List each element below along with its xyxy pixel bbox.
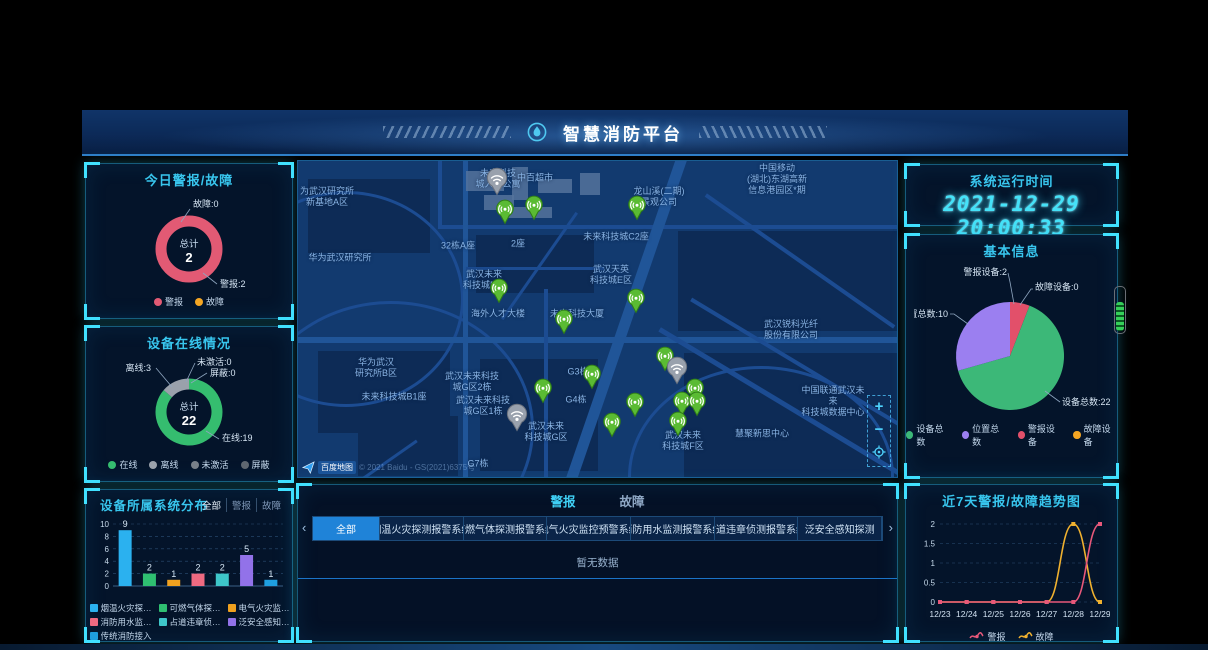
svg-text:12/25: 12/25: [982, 609, 1004, 619]
map-label: 海外人才大楼: [471, 309, 525, 320]
svg-text:12/26: 12/26: [1009, 609, 1031, 619]
alarm-filter-button[interactable]: 占道违章侦测报警系统: [715, 517, 799, 540]
device-marker-online[interactable]: [495, 199, 515, 229]
svg-text:2: 2: [147, 563, 152, 573]
svg-text:12/23: 12/23: [929, 609, 951, 619]
header-hatch-left: [383, 126, 511, 138]
svg-text:8: 8: [105, 532, 110, 541]
legend-item[interactable]: 占道违章侦测报警系统: [159, 616, 222, 628]
svg-text:12/24: 12/24: [956, 609, 978, 619]
tab-alarm[interactable]: 警报: [550, 491, 575, 510]
svg-text:9: 9: [123, 519, 128, 529]
legend-item[interactable]: 故障: [1018, 630, 1054, 643]
device-marker-online[interactable]: [626, 288, 646, 318]
svg-text:故障设备:0: 故障设备:0: [1035, 281, 1079, 292]
fire-shield-icon: [527, 122, 547, 142]
legend-item[interactable]: 可燃气体探测报警系统: [159, 602, 222, 614]
panel-title: 近7天警报/故障趋势图: [906, 491, 1117, 510]
panel-today-alarms: 今日警报/故障 总计2故障:0警报:2 警报故障: [85, 163, 293, 319]
device-marker-online[interactable]: [625, 392, 645, 422]
legend-item[interactable]: 烟温火灾探测报警系统: [90, 602, 153, 614]
legend-item[interactable]: 泛安全感知探测: [228, 616, 291, 628]
locate-button[interactable]: [872, 445, 886, 462]
footer-strip: [0, 644, 1208, 650]
legend-item[interactable]: 警报: [969, 630, 1005, 643]
svg-text:12/27: 12/27: [1036, 609, 1058, 619]
map-block: [678, 231, 898, 331]
legend-item[interactable]: 离线: [149, 458, 178, 471]
svg-text:离线:3: 离线:3: [125, 362, 151, 373]
svg-text:警报:2: 警报:2: [220, 278, 246, 289]
svg-text:6: 6: [105, 545, 110, 554]
alarm-fault-tabs: 警报 故障: [298, 485, 897, 510]
map-controls: + −: [867, 395, 891, 467]
header-hatch-right: [699, 126, 827, 138]
map-road: [438, 161, 442, 227]
device-marker-online[interactable]: [554, 309, 574, 339]
panel-header: 设备所属系统分布 全部警报故障: [86, 490, 292, 512]
system-distribution-bar-chart: 02468109212251: [91, 512, 287, 600]
legend-item[interactable]: 传统消防接入: [90, 630, 152, 642]
app-header: 智慧消防平台: [82, 110, 1128, 156]
svg-text:10: 10: [100, 520, 109, 529]
zoom-in-button[interactable]: +: [875, 400, 884, 414]
chart-legend: 警报故障: [906, 630, 1117, 643]
filter-scroll-right-icon[interactable]: ›: [889, 520, 893, 536]
today-alarm-donut-chart: 总计2故障:0警报:2: [91, 191, 287, 295]
chart-legend: 在线离线未激活屏蔽: [86, 458, 292, 471]
divider: [298, 578, 897, 579]
device-marker-online[interactable]: [627, 195, 647, 225]
panel-device-online: 设备在线情况 总计22离线:3未激活:0屏蔽:0在线:19 在线离线未激活屏蔽: [85, 326, 293, 482]
map-road: [463, 161, 468, 478]
device-marker-online[interactable]: [524, 195, 544, 225]
chart-legend: 烟温火灾探测报警系统可燃气体探测报警系统电气火灾监控预警系统消防用水监测报警系统…: [86, 600, 292, 642]
svg-text:在线:19: 在线:19: [222, 432, 253, 443]
panel-title: 今日警报/故障: [86, 170, 292, 189]
svg-text:5: 5: [244, 544, 249, 554]
svg-text:1: 1: [171, 569, 176, 579]
svg-text:0.5: 0.5: [923, 579, 935, 588]
svg-text:12/29: 12/29: [1089, 609, 1110, 619]
svg-text:0: 0: [930, 598, 935, 607]
svg-text:4: 4: [105, 557, 110, 566]
svg-text:故障:0: 故障:0: [193, 198, 219, 209]
zoom-out-button[interactable]: −: [875, 423, 884, 437]
device-marker-offline[interactable]: [505, 404, 529, 437]
legend-item[interactable]: 警报: [154, 295, 183, 308]
panel-title: 设备所属系统分布: [100, 495, 208, 514]
dashboard: 智慧消防平台 今日警报/故障 总计2故障:0警报:2 警报故障 设备在线情况 总…: [0, 0, 1208, 650]
legend-item[interactable]: 消防用水监测报警系统: [90, 616, 153, 628]
svg-text:2: 2: [195, 563, 200, 573]
svg-text:总计: 总计: [179, 238, 199, 250]
device-marker-offline[interactable]: [665, 357, 689, 390]
panel-alarm-list: 警报 故障 ‹ 全部烟温火灾探测报警系统可燃气体探测报警系统电气火灾监控预警系统…: [297, 484, 898, 642]
alarm-filter-button[interactable]: 烟温火灾探测报警系统: [380, 517, 464, 540]
svg-text:1: 1: [268, 569, 273, 579]
device-marker-offline[interactable]: [485, 168, 509, 201]
legend-item[interactable]: 位置总数: [962, 422, 1006, 448]
legend-item[interactable]: 故障: [195, 295, 224, 308]
svg-text:2: 2: [930, 520, 935, 529]
svg-text:2: 2: [105, 570, 110, 579]
map-copyright: © 2021 Baidu - GS(2021)6375号: [359, 462, 475, 473]
chart-legend: 设备总数位置总数警报设备故障设备: [906, 422, 1117, 448]
baidu-map-label[interactable]: 百度地图: [318, 461, 356, 474]
device-marker-online[interactable]: [602, 412, 622, 442]
legend-item[interactable]: 警报设备: [1018, 422, 1062, 448]
map-road: [297, 301, 534, 478]
alarm-filter-button[interactable]: 泛安全感知探测: [798, 517, 882, 540]
panel-system-distribution: 设备所属系统分布 全部警报故障 02468109212251 烟温火灾探测报警系…: [85, 489, 293, 642]
legend-item[interactable]: 设备总数: [906, 422, 950, 448]
scroll-indicator-fill: [1116, 302, 1124, 331]
svg-text:0: 0: [105, 582, 110, 591]
alarm-filter-button[interactable]: 可燃气体探测报警系统: [464, 517, 548, 540]
alarm-filter-button[interactable]: 全部: [313, 517, 380, 540]
empty-state-text: 暂无数据: [298, 555, 897, 570]
legend-item[interactable]: 电气火灾监控预警系统: [228, 602, 291, 614]
device-marker-online[interactable]: [489, 278, 509, 308]
alarm-filter-button[interactable]: 消防用水监测报警系统: [631, 517, 715, 540]
legend-item[interactable]: 故障设备: [1073, 422, 1117, 448]
chart-legend: 警报故障: [86, 295, 292, 308]
device-marker-online[interactable]: [582, 364, 602, 394]
svg-text:2: 2: [220, 563, 225, 573]
svg-text:总计: 总计: [179, 401, 199, 413]
page-title: 智慧消防平台: [563, 120, 683, 145]
page-scroll-indicator[interactable]: [1114, 286, 1126, 334]
svg-text:位置总数:10: 位置总数:10: [914, 308, 948, 319]
device-marker-online[interactable]: [533, 378, 553, 408]
map-label: 中国移动 (湖北)东湖高新 信息港园区*期: [747, 163, 807, 195]
distribution-filter-警报[interactable]: 警报: [226, 498, 256, 512]
panel-title: 基本信息: [906, 241, 1117, 260]
panel-title: 系统运行时间: [906, 171, 1117, 190]
panel-basic-info: 基本信息 警报设备:2故障设备:0位置总数:10设备总数:22 设备总数位置总数…: [905, 234, 1118, 478]
device-marker-online[interactable]: [687, 391, 707, 421]
svg-text:1: 1: [930, 559, 935, 568]
tab-fault[interactable]: 故障: [620, 491, 645, 510]
legend-item[interactable]: 屏蔽: [241, 458, 270, 471]
alarm-filter-bar: ‹ 全部烟温火灾探测报警系统可燃气体探测报警系统电气火灾监控预警系统消防用水监测…: [312, 516, 883, 541]
alarm-filter-button[interactable]: 电气火灾监控预警系统: [547, 517, 631, 540]
map-road: [298, 337, 898, 343]
basic-info-pie-chart: 警报设备:2故障设备:0位置总数:10设备总数:22: [914, 262, 1110, 422]
filter-scroll-left-icon[interactable]: ‹: [302, 520, 306, 536]
panel-title: 设备在线情况: [86, 333, 292, 352]
map-building: [538, 179, 572, 193]
svg-text:12/28: 12/28: [1062, 609, 1084, 619]
svg-text:2: 2: [185, 250, 192, 265]
svg-text:设备总数:22: 设备总数:22: [1062, 396, 1110, 407]
legend-item[interactable]: 未激活: [191, 458, 229, 471]
device-online-donut-chart: 总计22离线:3未激活:0屏蔽:0在线:19: [91, 354, 287, 458]
distribution-filter-tabs: 全部警报故障: [197, 498, 286, 512]
svg-text:屏蔽:0: 屏蔽:0: [210, 367, 236, 378]
map-canvas[interactable]: 未来科技 城人才公寓中百超市为武汉研究所 新基地A区龙山溪(二期) 景观公司中国…: [297, 160, 898, 478]
device-marker-online[interactable]: [668, 411, 688, 441]
map-building: [580, 173, 600, 195]
baidu-logo[interactable]: [302, 461, 315, 474]
panel-system-runtime: 系统运行时间 2021-12-29 20:00:33: [905, 164, 1118, 226]
svg-text:未激活:0: 未激活:0: [197, 356, 232, 367]
svg-text:警报设备:2: 警报设备:2: [963, 266, 1007, 277]
distribution-filter-全部[interactable]: 全部: [197, 498, 226, 512]
system-runtime-clock: 2021-12-29 20:00:33: [906, 192, 1117, 240]
legend-item[interactable]: 在线: [108, 458, 137, 471]
trend-line-chart: 00.511.5212/2312/2412/2512/2612/2712/281…: [914, 512, 1110, 630]
distribution-filter-故障[interactable]: 故障: [256, 498, 286, 512]
panel-trend: 近7天警报/故障趋势图 00.511.5212/2312/2412/2512/2…: [905, 484, 1118, 642]
svg-text:22: 22: [182, 413, 196, 428]
map-attribution: 百度地图 © 2021 Baidu - GS(2021)6375号: [302, 461, 475, 474]
svg-text:1.5: 1.5: [923, 540, 935, 549]
